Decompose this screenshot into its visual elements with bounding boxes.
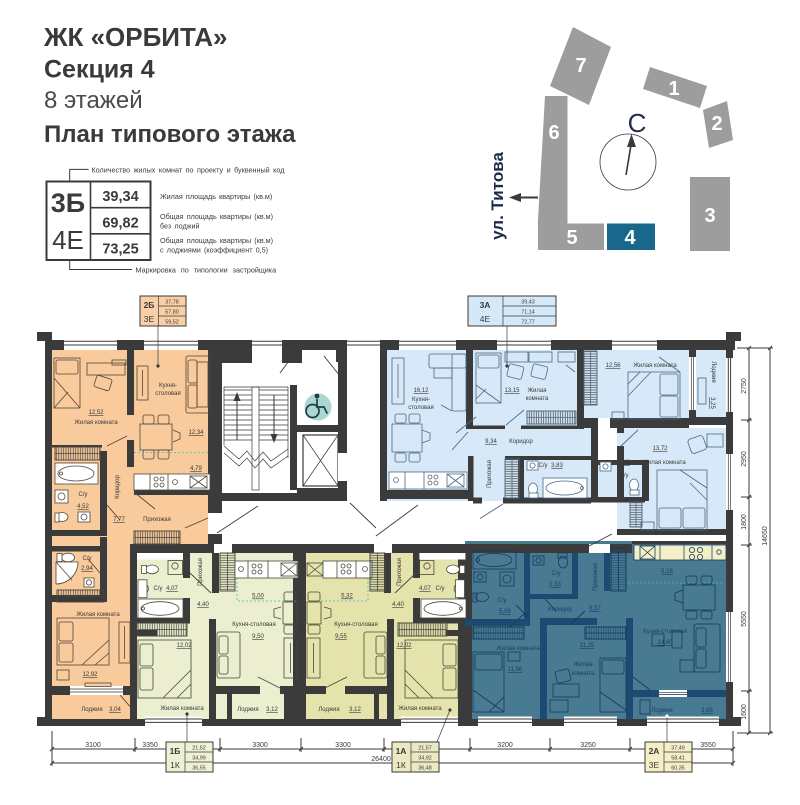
svg-text:9,34: 9,34: [485, 439, 497, 445]
svg-text:39,34: 39,34: [102, 189, 138, 205]
svg-text:Лоджия: Лоджия: [237, 707, 258, 713]
svg-text:3250: 3250: [580, 742, 596, 749]
svg-text:16,12: 16,12: [413, 388, 429, 394]
svg-text:3300: 3300: [335, 742, 351, 749]
svg-text:36,55: 36,55: [192, 766, 206, 772]
svg-text:59,52: 59,52: [165, 320, 179, 326]
svg-text:Прихожая: Прихожая: [143, 517, 171, 523]
svg-text:1А: 1А: [396, 746, 407, 756]
svg-text:столовая: столовая: [155, 391, 181, 397]
svg-text:1: 1: [668, 78, 679, 100]
svg-text:1К: 1К: [396, 760, 406, 770]
svg-text:Жилая комната: Жилая комната: [74, 420, 118, 426]
svg-text:8 этажей: 8 этажей: [44, 87, 143, 114]
svg-text:12,56: 12,56: [605, 363, 621, 369]
svg-text:69,82: 69,82: [102, 216, 138, 232]
svg-text:3550: 3550: [700, 742, 716, 749]
svg-text:7: 7: [575, 55, 586, 77]
svg-text:4,40: 4,40: [197, 602, 209, 608]
svg-text:4,07: 4,07: [419, 586, 431, 592]
svg-text:3: 3: [704, 205, 715, 227]
svg-text:2,42: 2,42: [618, 460, 630, 466]
svg-text:ул. Титова: ул. Титова: [488, 152, 507, 240]
svg-text:8,37: 8,37: [589, 606, 601, 612]
svg-text:34,92: 34,92: [418, 756, 432, 762]
svg-text:1К: 1К: [170, 760, 180, 770]
svg-text:13,15: 13,15: [504, 388, 520, 394]
svg-text:4,40: 4,40: [392, 602, 404, 608]
svg-text:Общая площадь квартиры (кв.м): Общая площадь квартиры (кв.м): [160, 212, 273, 221]
svg-text:Секция 4: Секция 4: [44, 56, 155, 84]
svg-text:С: С: [628, 108, 647, 138]
svg-text:4Е: 4Е: [480, 314, 491, 324]
svg-text:4,07: 4,07: [166, 586, 178, 592]
svg-text:С/у: С/у: [154, 586, 163, 592]
svg-text:Кухня-столовая: Кухня-столовая: [334, 622, 378, 628]
svg-text:13,72: 13,72: [652, 446, 668, 452]
svg-text:1Б: 1Б: [170, 746, 181, 756]
svg-text:с лоджиями (коэффициент 0,5): с лоджиями (коэффициент 0,5): [160, 246, 268, 255]
svg-text:11,25: 11,25: [580, 643, 595, 649]
svg-text:6: 6: [548, 122, 559, 144]
svg-text:Кухня-: Кухня-: [412, 397, 430, 403]
svg-text:Коридор: Коридор: [548, 607, 572, 613]
svg-text:Лоджия: Лоджия: [710, 361, 716, 382]
svg-text:1800: 1800: [741, 514, 748, 530]
svg-text:37,49: 37,49: [671, 746, 685, 752]
svg-text:71,14: 71,14: [521, 310, 535, 316]
svg-text:Общая площадь квартиры (кв.м): Общая площадь квартиры (кв.м): [160, 236, 273, 245]
svg-text:3,25: 3,25: [709, 397, 715, 409]
svg-text:3Е: 3Е: [144, 314, 155, 324]
svg-text:Прихожая: Прихожая: [198, 558, 204, 586]
svg-text:Коридор: Коридор: [509, 439, 533, 445]
svg-text:21,52: 21,52: [192, 746, 206, 752]
svg-text:3Б: 3Б: [51, 188, 85, 218]
svg-text:3200: 3200: [497, 742, 513, 749]
svg-text:Жилая комната: Жилая комната: [633, 363, 677, 369]
svg-text:1600: 1600: [741, 704, 748, 720]
svg-text:3350: 3350: [142, 742, 158, 749]
svg-text:С/у: С/у: [498, 598, 507, 604]
svg-text:2А: 2А: [649, 746, 660, 756]
svg-text:столовая: столовая: [408, 405, 434, 411]
svg-text:4,52: 4,52: [77, 504, 89, 510]
svg-text:11,56: 11,56: [508, 667, 523, 673]
svg-text:4Е: 4Е: [52, 225, 84, 255]
svg-text:План типового этажа: План типового этажа: [44, 121, 296, 148]
svg-text:3,12: 3,12: [349, 707, 361, 713]
svg-text:12,02: 12,02: [396, 643, 412, 649]
svg-text:2,33: 2,33: [549, 582, 561, 588]
svg-text:34,99: 34,99: [192, 756, 206, 762]
svg-text:12,92: 12,92: [82, 672, 98, 678]
svg-text:комната: комната: [572, 671, 595, 677]
svg-text:Лоджия: Лоджия: [318, 707, 339, 713]
svg-text:Маркировка по типологии застро: Маркировка по типологии застройщика: [136, 265, 277, 274]
svg-text:2,94: 2,94: [81, 566, 93, 572]
svg-text:60,35: 60,35: [671, 766, 685, 772]
svg-text:Жилая комната: Жилая комната: [496, 646, 540, 652]
svg-text:С/у: С/у: [83, 556, 92, 562]
svg-text:3,04: 3,04: [109, 707, 121, 713]
svg-text:57,80: 57,80: [165, 310, 179, 316]
svg-text:9,50: 9,50: [252, 634, 264, 640]
svg-text:С/у: С/у: [620, 473, 629, 479]
svg-text:58,41: 58,41: [671, 756, 685, 762]
svg-text:14,60: 14,60: [657, 640, 673, 646]
svg-text:12,52: 12,52: [88, 410, 104, 416]
svg-text:Прихожая: Прихожая: [397, 558, 403, 586]
svg-text:Лоджия: Лоджия: [81, 707, 102, 713]
svg-text:14650: 14650: [762, 526, 769, 546]
svg-text:39,43: 39,43: [521, 300, 535, 306]
svg-text:комната: комната: [526, 396, 549, 402]
svg-text:Кухня-столовая: Кухня-столовая: [232, 622, 276, 628]
svg-text:С/у: С/у: [552, 571, 561, 577]
svg-text:2Б: 2Б: [144, 300, 155, 310]
svg-text:2750: 2750: [741, 378, 748, 394]
svg-text:7,77: 7,77: [113, 517, 125, 523]
svg-text:Жилая: Жилая: [528, 388, 547, 394]
svg-text:С/у: С/у: [436, 586, 445, 592]
svg-text:12,34: 12,34: [188, 430, 204, 436]
svg-text:12,02: 12,02: [176, 643, 192, 649]
svg-text:5,06: 5,06: [499, 609, 511, 615]
svg-text:2950: 2950: [741, 451, 748, 467]
svg-text:Жилая комната: Жилая комната: [398, 706, 442, 712]
svg-text:С/у: С/у: [539, 463, 548, 469]
svg-text:3,88: 3,88: [701, 708, 713, 714]
svg-text:26400: 26400: [371, 756, 391, 763]
svg-text:Количество жилых комнат по про: Количество жилых комнат по проекту и бук…: [92, 165, 286, 174]
svg-text:5550: 5550: [741, 611, 748, 627]
svg-text:4,79: 4,79: [190, 466, 202, 472]
svg-text:36,48: 36,48: [418, 766, 432, 772]
svg-text:Прихожая: Прихожая: [487, 460, 493, 488]
svg-text:3,12: 3,12: [266, 707, 278, 713]
svg-text:Жилая: Жилая: [574, 662, 593, 668]
svg-text:без лоджий: без лоджий: [160, 222, 200, 231]
svg-text:Жилая комната: Жилая комната: [160, 706, 204, 712]
svg-text:3Е: 3Е: [649, 760, 660, 770]
svg-text:Кухня-столовая: Кухня-столовая: [643, 629, 687, 635]
svg-text:Кухня-: Кухня-: [159, 383, 177, 389]
svg-text:3100: 3100: [85, 742, 101, 749]
svg-text:72,77: 72,77: [521, 320, 535, 326]
svg-text:С/у: С/у: [79, 492, 88, 498]
svg-text:3300: 3300: [252, 742, 268, 749]
svg-text:37,78: 37,78: [165, 300, 179, 306]
svg-text:2: 2: [711, 113, 722, 135]
svg-text:Жилая площадь квартиры (кв.м): Жилая площадь квартиры (кв.м): [160, 192, 272, 201]
svg-text:9,55: 9,55: [335, 634, 347, 640]
svg-text:Прихожая: Прихожая: [593, 563, 599, 591]
svg-text:21,57: 21,57: [418, 746, 432, 752]
svg-text:ЖК «ОРБИТА»: ЖК «ОРБИТА»: [43, 22, 227, 52]
svg-text:Лоджия: Лоджия: [651, 708, 672, 714]
svg-text:5: 5: [566, 227, 577, 249]
svg-text:5,00: 5,00: [252, 594, 264, 600]
svg-text:Жилая комната: Жилая комната: [76, 612, 120, 618]
svg-text:4: 4: [624, 227, 636, 249]
svg-text:Жилая комната: Жилая комната: [642, 460, 686, 466]
svg-text:3А: 3А: [480, 300, 491, 310]
svg-text:Коридор: Коридор: [115, 474, 121, 498]
svg-text:5,16: 5,16: [661, 569, 673, 575]
svg-text:3,83: 3,83: [551, 463, 563, 469]
svg-text:73,25: 73,25: [102, 242, 138, 258]
svg-text:5,32: 5,32: [341, 594, 353, 600]
